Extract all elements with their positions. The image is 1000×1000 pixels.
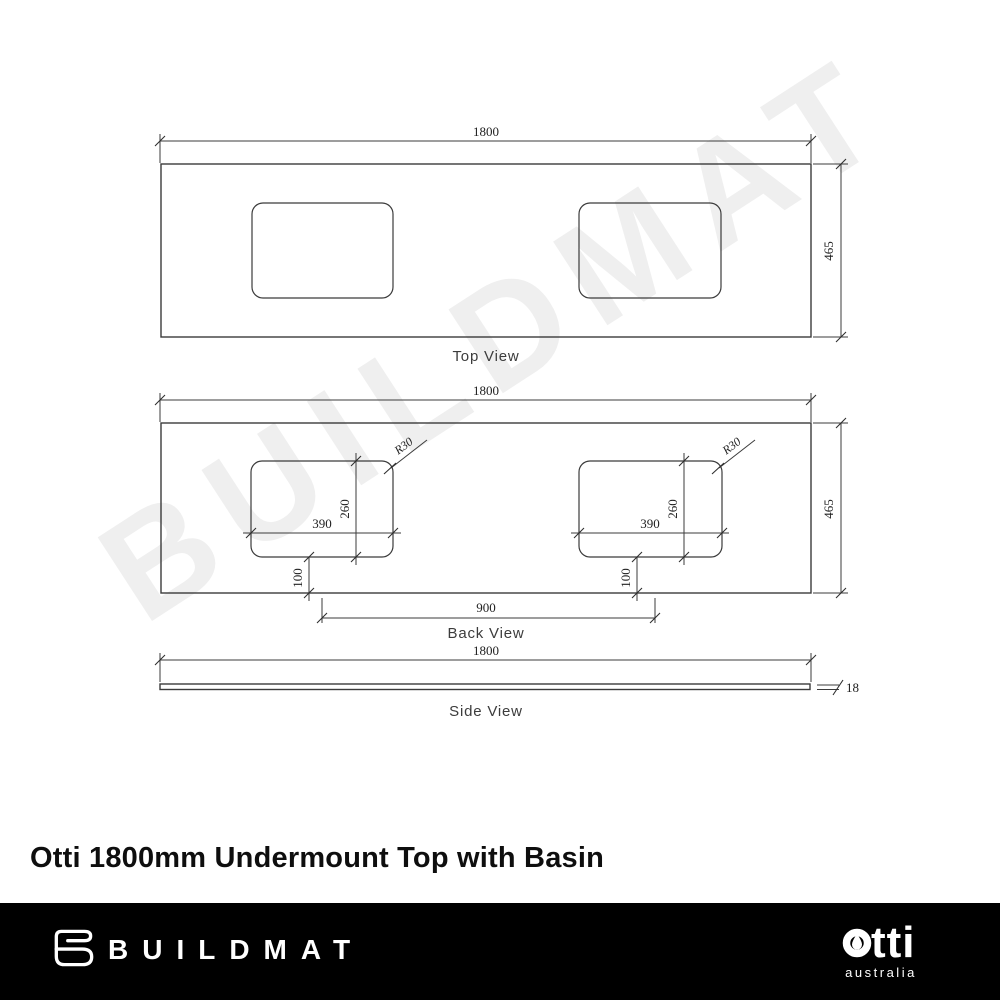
right-basin-dimensions: 390 260 R30 100 <box>571 434 755 601</box>
left-basin-dimensions: 390 260 R30 100 <box>243 434 427 601</box>
top-view-benchtop-outline <box>161 164 811 337</box>
otti-logo: tti australia <box>830 908 940 988</box>
back-view-width-value: 1800 <box>473 383 499 398</box>
towel-fold-bottom <box>56 949 91 965</box>
left-basin-width-value: 390 <box>312 516 332 531</box>
top-view-width-value: 1800 <box>473 124 499 139</box>
product-title: Otti 1800mm Undermount Top with Basin <box>30 842 604 875</box>
side-view-width-value: 1800 <box>473 643 499 658</box>
thickness-value: 18 <box>846 680 859 695</box>
thickness-callout <box>817 680 843 695</box>
side-view-label: Side View <box>449 703 523 720</box>
top-view-label: Top View <box>453 348 520 365</box>
right-basin-depth-value: 260 <box>665 499 680 519</box>
side-view: 1800 18 Side View <box>155 643 859 720</box>
left-basin-radius-value: R30 <box>391 434 416 457</box>
top-view-depth-value: 465 <box>821 241 836 261</box>
basin-spacing-value: 900 <box>476 600 496 615</box>
top-view-basin-cutout-left <box>252 203 393 298</box>
right-basin-width-value: 390 <box>640 516 660 531</box>
top-view-basin-cutout-right <box>579 203 721 298</box>
towel-fold-top <box>56 931 90 949</box>
back-view-depth-value: 465 <box>821 499 836 519</box>
back-view-basin-cutout-left <box>251 461 393 557</box>
otti-sub-label: australia <box>845 965 917 980</box>
page: BUILDMAT 1800 465 Top View <box>0 0 1000 1000</box>
left-basin-depth-value: 260 <box>337 499 352 519</box>
side-view-benchtop-profile <box>160 684 810 690</box>
back-view: 1800 390 <box>155 383 848 642</box>
otti-wordmark: tti <box>871 918 916 967</box>
back-view-benchtop-outline <box>161 423 811 593</box>
right-basin-offset-value: 100 <box>618 568 633 588</box>
top-view: 1800 465 Top View <box>155 124 848 365</box>
buildmat-logo-icon <box>48 926 100 970</box>
right-basin-radius-value: R30 <box>719 434 744 457</box>
buildmat-wordmark: BUILDMAT <box>108 934 364 966</box>
left-basin-offset-value: 100 <box>290 568 305 588</box>
back-view-basin-cutout-right <box>579 461 722 557</box>
back-view-label: Back View <box>448 625 525 642</box>
